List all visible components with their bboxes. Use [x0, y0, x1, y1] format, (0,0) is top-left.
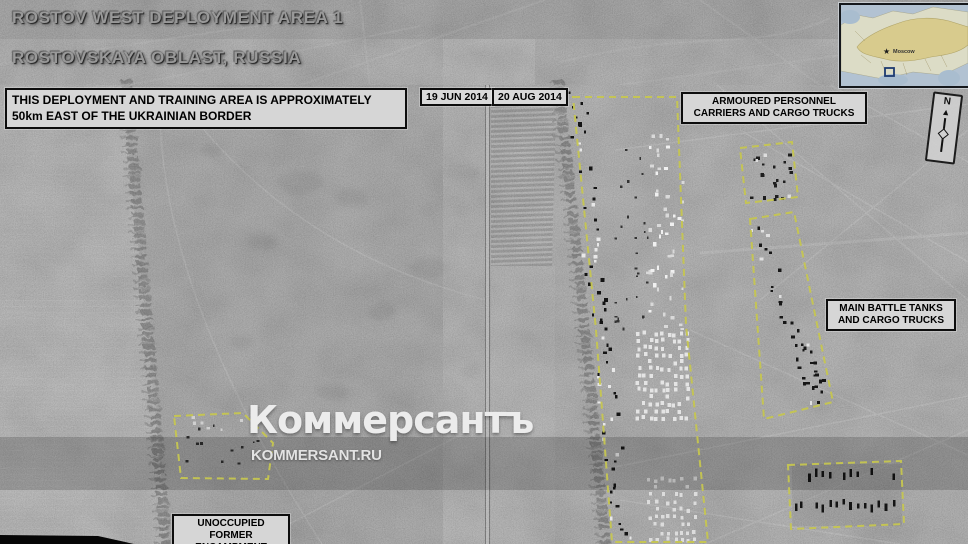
- watermark: Коммерсантъ KOMMERSANT.RU: [247, 401, 533, 464]
- right-image-date-label: 20 AUG 2014: [492, 88, 568, 106]
- compass-stem: [940, 118, 946, 152]
- locator-map: ★ Moscow: [839, 3, 968, 88]
- left-image-date-label: 19 JUN 2014: [420, 88, 494, 106]
- info-callout: THIS DEPLOYMENT AND TRAINING AREA IS APP…: [5, 88, 407, 129]
- kommersant-url: KOMMERSANT.RU: [251, 447, 533, 464]
- north-arrowhead-icon: ▲: [941, 108, 951, 118]
- compass-diamond-icon: [938, 128, 949, 139]
- satellite-comparison-graphic: ROSTOV WEST DEPLOYMENT AREA 1 ROSTOVSKAY…: [0, 0, 968, 544]
- moscow-label: Moscow: [893, 49, 915, 55]
- kommersant-logo: Коммерсантъ: [247, 401, 533, 439]
- tanks-callout: MAIN BATTLE TANKS AND CARGO TRUCKS: [826, 299, 956, 331]
- apc-callout: ARMOURED PERSONNEL CARRIERS AND CARGO TR…: [681, 92, 867, 124]
- moscow-star-icon: ★: [883, 47, 890, 56]
- encampment-callout: UNOCCUPIED FORMER ENCAMPMENT: [172, 514, 290, 544]
- page-title: ROSTOV WEST DEPLOYMENT AREA 1: [12, 8, 343, 28]
- page-subtitle: ROSTOVSKAYA OBLAST, RUSSIA: [12, 48, 301, 68]
